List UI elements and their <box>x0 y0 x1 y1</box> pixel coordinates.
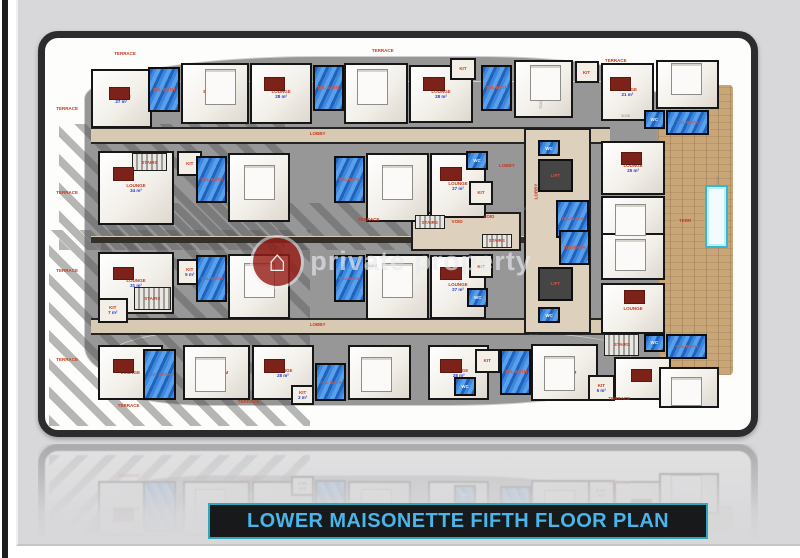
wc-wc: WC <box>538 307 561 323</box>
watermark: ⌂ private property <box>253 238 532 286</box>
kit-kit: KIT <box>475 349 500 373</box>
rug <box>423 77 444 90</box>
bed <box>671 377 702 406</box>
kit-kit: KIT7 m² <box>98 298 128 322</box>
bath-tol-bath: TOL BATH <box>481 65 512 110</box>
lift-lift: LIFT <box>538 159 573 193</box>
label-void: VOID <box>452 219 463 224</box>
stairs-stairs: STAIRS <box>134 287 171 311</box>
room-lounge: LOUNGE25 m² <box>601 141 665 194</box>
stairs-stairs: STAIRS <box>604 334 639 356</box>
kit-kit: KIT3 m² <box>291 385 314 405</box>
bath-tol-bath: TOL BATH <box>313 65 344 110</box>
room-lounge: LOUNGE28 m² <box>250 63 311 124</box>
label-terrace: TERRACE <box>56 268 78 273</box>
bed <box>361 357 392 392</box>
label-terrace: TERRACE <box>358 217 380 222</box>
rug <box>113 359 134 372</box>
bath-tol-bath: TOL BATH <box>143 349 175 400</box>
rug <box>624 290 645 303</box>
wc-wc: WC <box>467 288 488 307</box>
label-terrace: TERRACE <box>118 403 140 408</box>
lift-lift: LIFT <box>538 267 573 301</box>
wc-wc: WC <box>454 377 475 396</box>
bed <box>615 239 646 270</box>
pool <box>705 185 728 248</box>
dim-7043: 7043 <box>538 100 543 109</box>
rug <box>440 359 461 372</box>
rug <box>440 167 461 180</box>
label-terrace: TERRACE <box>56 190 78 195</box>
bath-tol-bath: TOL BATH <box>666 334 707 358</box>
bed <box>671 63 702 94</box>
rug <box>109 87 130 100</box>
dim-7045: 7045 <box>529 333 538 338</box>
label-lobby: LOBBY <box>310 131 326 136</box>
bath-tol-bath: TOL BATH <box>196 255 227 302</box>
bath-tol-bath: TOL BATH <box>666 110 708 135</box>
bath-tol-bath: TOL/BATH <box>559 230 590 265</box>
bed <box>357 69 388 104</box>
label-terrace: TERRACE <box>238 399 260 404</box>
floor-plan: LOUNGE27 m²TOL BATHBEDROOM23 m²LOUNGE28 … <box>45 38 751 430</box>
rug <box>113 167 134 180</box>
label-terr: TERR <box>679 218 691 223</box>
label-terrace: TERRACE <box>56 357 78 362</box>
wc-wc: WC <box>538 140 561 156</box>
bed <box>615 204 646 235</box>
label-void: VOID <box>483 214 494 219</box>
dim-2788: 2788 <box>517 206 526 211</box>
label-lobby: LOBBY <box>310 322 326 327</box>
label-lobby: LOBBY <box>533 184 538 200</box>
wc-wc: WC <box>466 151 487 170</box>
wc-wc: WC <box>644 334 665 351</box>
kit-kit: KIT <box>469 181 494 205</box>
label-terrace: TERRACE <box>605 58 627 63</box>
bed <box>530 65 561 100</box>
label-terrace: TERRACE <box>56 106 78 111</box>
wc-wc: WC <box>644 110 665 129</box>
rug <box>113 267 134 280</box>
bed <box>205 69 236 104</box>
left-edge-stripe <box>2 0 8 558</box>
floor-plan-board: LOUNGE27 m²TOL BATHBEDROOM23 m²LOUNGE28 … <box>38 31 758 437</box>
label-lobby: LOBBY <box>499 163 515 168</box>
rug <box>631 369 652 382</box>
bath-tol-bath: TOL BATH <box>315 363 346 401</box>
label-terrace: TERRACE <box>608 396 630 401</box>
bed <box>544 356 575 391</box>
rug <box>610 77 631 90</box>
kit-kit: KIT <box>575 61 599 84</box>
bed <box>382 165 413 200</box>
title-text: LOWER MAISONETTE FIFTH FLOOR PLAN <box>247 510 669 533</box>
bed <box>195 357 226 392</box>
label-terrace: TERRACE <box>114 51 136 56</box>
stairs-stairs: STAIRS <box>415 215 445 229</box>
house-circle-icon: ⌂ <box>253 238 301 286</box>
bath-tol-bath: TOL BATH <box>500 349 531 394</box>
bath-tol-bath: TOL BATH <box>148 67 180 112</box>
bed <box>244 165 275 200</box>
rug <box>264 77 285 90</box>
kit-kit: KIT <box>450 58 475 80</box>
rug <box>621 152 642 165</box>
bath-tol-bath: TOL BATH <box>196 156 227 203</box>
title-bar: LOWER MAISONETTE FIFTH FLOOR PLAN <box>208 503 708 539</box>
stairs-stairs: STAIRS <box>132 153 167 171</box>
rug <box>264 359 285 372</box>
bath-tol-bath: TOL BATH <box>334 156 365 203</box>
dim-3045: 3045 <box>621 113 630 118</box>
watermark-text: private property <box>310 246 532 277</box>
house-icon: ⌂ <box>268 247 286 277</box>
label-terrace: TERRACE <box>372 48 394 53</box>
dim-2195: 2195 <box>715 176 720 185</box>
